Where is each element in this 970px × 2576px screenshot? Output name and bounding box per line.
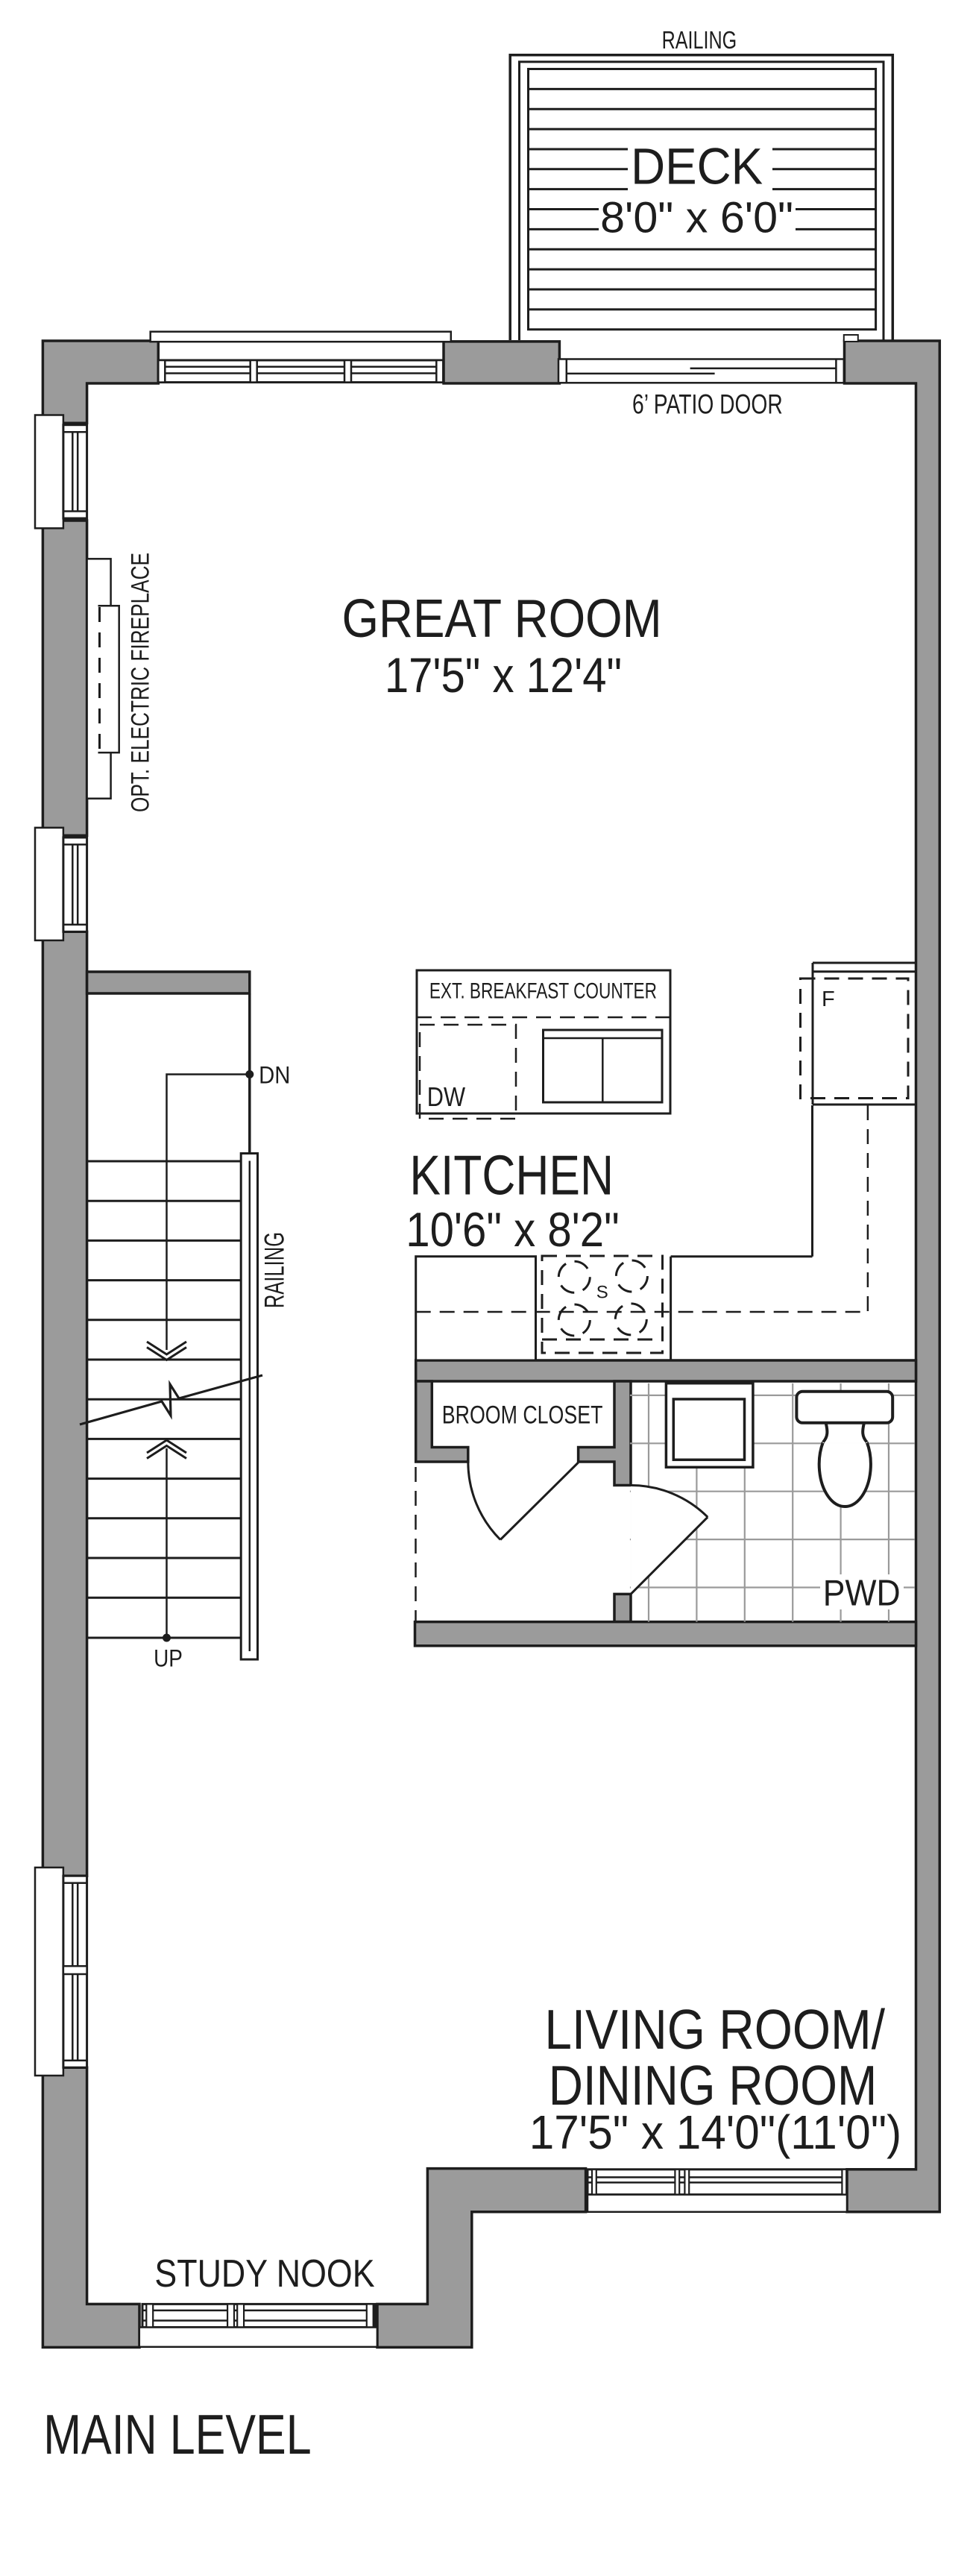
svg-text:RAILING: RAILING <box>662 26 737 54</box>
svg-text:8'0" x 6'0": 8'0" x 6'0" <box>600 193 793 242</box>
svg-text:LIVING ROOM/: LIVING ROOM/ <box>544 1998 885 2061</box>
svg-text:RAILING: RAILING <box>259 1232 290 1308</box>
svg-text:17'5" x 14'0"(11'0"): 17'5" x 14'0"(11'0") <box>529 2105 901 2159</box>
svg-text:MAIN LEVEL: MAIN LEVEL <box>43 2403 312 2466</box>
svg-text:DECK: DECK <box>631 138 763 195</box>
svg-text:UP: UP <box>154 1645 183 1672</box>
svg-text:BROOM CLOSET: BROOM CLOSET <box>442 1401 603 1429</box>
svg-text:EXT. BREAKFAST COUNTER: EXT. BREAKFAST COUNTER <box>429 979 657 1004</box>
svg-text:10'6" x 8'2": 10'6" x 8'2" <box>406 1203 620 1257</box>
svg-text:S: S <box>596 1283 608 1303</box>
svg-text:DN: DN <box>259 1062 290 1089</box>
svg-text:F: F <box>822 987 835 1011</box>
svg-text:STUDY NOOK: STUDY NOOK <box>154 2252 374 2296</box>
svg-text:KITCHEN: KITCHEN <box>409 1145 614 1207</box>
svg-text:OPT. ELECTRIC FIREPLACE: OPT. ELECTRIC FIREPLACE <box>127 553 155 812</box>
svg-text:DW: DW <box>427 1081 465 1112</box>
svg-text:GREAT ROOM: GREAT ROOM <box>341 588 661 649</box>
svg-text:PWD: PWD <box>823 1574 901 1614</box>
svg-text:17'5" x 12'4": 17'5" x 12'4" <box>385 648 622 703</box>
svg-text:6’ PATIO DOOR: 6’ PATIO DOOR <box>632 389 783 420</box>
